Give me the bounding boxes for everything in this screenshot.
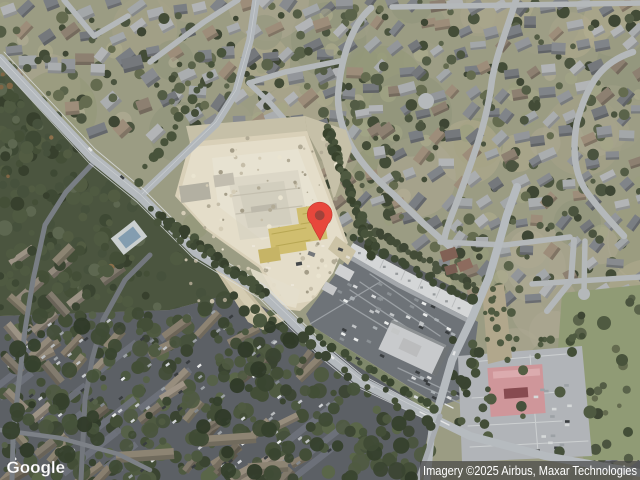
svg-text:Imagery ©2025 Airbus, Maxar Te: Imagery ©2025 Airbus, Maxar Technologies	[423, 464, 637, 478]
svg-text:Google: Google	[7, 458, 66, 477]
